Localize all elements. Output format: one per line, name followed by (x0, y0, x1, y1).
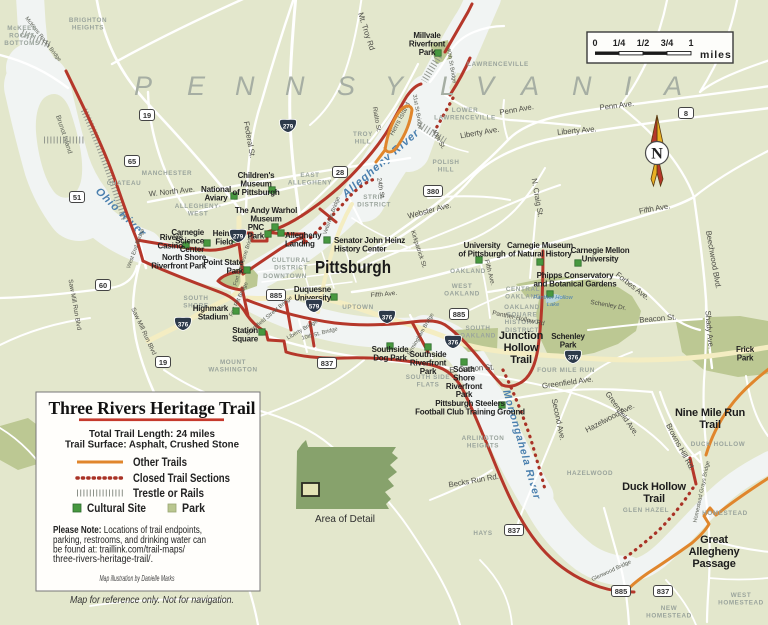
svg-text:HEIGHTS: HEIGHTS (72, 25, 104, 32)
svg-text:History Center: History Center (334, 244, 386, 253)
svg-text:Closed Trail Sections: Closed Trail Sections (133, 473, 230, 485)
svg-text:BRIGHTON: BRIGHTON (69, 17, 107, 24)
svg-text:Lake: Lake (547, 302, 560, 308)
svg-text:HAZELWOOD: HAZELWOOD (567, 470, 613, 477)
svg-text:GLEN HAZEL: GLEN HAZEL (623, 507, 669, 514)
svg-text:Allegheny: Allegheny (689, 546, 741, 558)
svg-text:579: 579 (309, 304, 320, 311)
svg-text:8: 8 (684, 109, 688, 118)
svg-text:HEIGHTS: HEIGHTS (467, 443, 499, 450)
svg-text:WEST: WEST (188, 211, 209, 218)
svg-text:Dog Park: Dog Park (373, 353, 407, 362)
svg-text:and Botanical Gardens: and Botanical Gardens (534, 279, 618, 288)
svg-text:I: I (624, 71, 632, 101)
svg-text:DISTRICT: DISTRICT (274, 265, 308, 272)
svg-text:Hollow: Hollow (504, 342, 539, 354)
svg-text:E: E (187, 71, 206, 101)
svg-text:885: 885 (453, 310, 466, 319)
svg-text:of Natural History: of Natural History (508, 249, 572, 258)
svg-text:Park: Park (560, 340, 577, 349)
svg-text:Field: Field (215, 237, 233, 246)
svg-text:BOTTOMS: BOTTOMS (4, 40, 40, 47)
svg-text:three-rivers-heritage-trail/.: three-rivers-heritage-trail/. (53, 554, 153, 565)
svg-text:Trestle or Rails: Trestle or Rails (133, 488, 204, 500)
svg-text:Park: Park (456, 390, 473, 399)
svg-text:Square: Square (232, 334, 259, 343)
svg-text:N: N (651, 146, 663, 163)
svg-text:Park: Park (420, 367, 437, 376)
svg-text:MOUNT: MOUNT (220, 359, 246, 366)
svg-text:Park: Park (182, 503, 206, 515)
svg-text:376: 376 (178, 322, 189, 329)
svg-text:Y: Y (385, 71, 405, 101)
svg-text:Junction: Junction (499, 330, 544, 342)
svg-text:LAWRENCEVILLE: LAWRENCEVILLE (434, 115, 496, 122)
svg-text:N: N (285, 71, 305, 101)
svg-text:POLISH: POLISH (432, 159, 459, 166)
svg-text:S: S (337, 71, 355, 101)
svg-text:Trail Surface: Asphalt, Crushe: Trail Surface: Asphalt, Crushed Stone (65, 439, 239, 451)
svg-text:885: 885 (615, 587, 628, 596)
svg-text:of Pittsburgh: of Pittsburgh (232, 188, 279, 197)
svg-text:WASHINGTON: WASHINGTON (208, 367, 257, 374)
svg-text:OAKLAND: OAKLAND (460, 333, 496, 340)
svg-text:HOMESTEAD: HOMESTEAD (646, 613, 692, 620)
svg-text:885: 885 (270, 291, 283, 300)
svg-text:Aviary: Aviary (205, 193, 229, 202)
svg-text:Other Trails: Other Trails (133, 457, 187, 469)
svg-text:Pittsburgh: Pittsburgh (315, 257, 391, 277)
svg-text:376: 376 (382, 315, 393, 322)
svg-text:UPTOWN: UPTOWN (342, 304, 373, 311)
svg-text:miles: miles (700, 49, 732, 61)
svg-text:Trail: Trail (643, 493, 665, 505)
svg-text:Passage: Passage (692, 558, 735, 570)
svg-text:SOUTH: SOUTH (183, 295, 208, 302)
svg-text:51: 51 (73, 193, 81, 202)
svg-text:P: P (134, 71, 152, 101)
svg-text:FLATS: FLATS (417, 382, 440, 389)
svg-text:MANCHESTER: MANCHESTER (142, 170, 192, 177)
svg-text:Landing: Landing (285, 239, 315, 248)
svg-text:Football Club Training Ground: Football Club Training Ground (415, 407, 525, 416)
svg-text:DUCK HOLLOW: DUCK HOLLOW (691, 441, 746, 448)
svg-text:of Pittsburgh: of Pittsburgh (458, 249, 505, 258)
svg-text:A: A (519, 71, 539, 101)
svg-text:OAKLAND: OAKLAND (504, 304, 540, 311)
svg-text:Great: Great (700, 534, 728, 546)
svg-text:TROY: TROY (353, 131, 373, 138)
svg-text:28: 28 (336, 168, 344, 177)
svg-text:V: V (476, 71, 497, 101)
svg-text:65: 65 (128, 157, 136, 166)
svg-text:N: N (572, 71, 592, 101)
svg-text:Area of Detail: Area of Detail (315, 513, 375, 525)
svg-text:376: 376 (568, 355, 579, 362)
svg-text:HILL: HILL (355, 139, 371, 146)
svg-text:Trail: Trail (510, 354, 532, 366)
svg-text:HOMESTEAD: HOMESTEAD (702, 510, 748, 517)
svg-text:Park: Park (737, 353, 754, 362)
svg-text:3/4: 3/4 (661, 38, 674, 48)
svg-text:LOWER: LOWER (452, 107, 478, 114)
svg-text:HOMESTEAD: HOMESTEAD (718, 600, 764, 607)
svg-text:DISTRICT: DISTRICT (357, 202, 391, 209)
svg-text:Park: Park (226, 266, 243, 275)
svg-text:376: 376 (448, 340, 459, 347)
svg-text:SOUTH: SOUTH (465, 325, 490, 332)
svg-text:837: 837 (508, 526, 521, 535)
svg-text:Duck Hollow: Duck Hollow (622, 481, 686, 493)
svg-text:837: 837 (321, 359, 334, 368)
svg-text:ALLEGHENY: ALLEGHENY (288, 180, 332, 187)
svg-text:Map for reference only. Not fo: Map for reference only. Not for navigati… (70, 594, 234, 606)
svg-text:279: 279 (233, 234, 244, 241)
svg-text:Park: Park (419, 48, 436, 57)
svg-text:19: 19 (143, 111, 151, 120)
svg-text:Three Rivers Heritage Trail: Three Rivers Heritage Trail (49, 398, 256, 418)
svg-text:WEST: WEST (452, 283, 473, 290)
svg-text:L: L (440, 71, 455, 101)
svg-text:McKEES: McKEES (7, 25, 37, 32)
svg-text:EAST: EAST (300, 172, 319, 179)
svg-text:HAYS: HAYS (473, 530, 492, 537)
svg-text:1: 1 (688, 38, 693, 48)
svg-text:Cultural Site: Cultural Site (87, 503, 146, 515)
svg-text:Map illustration by Danielle M: Map illustration by Danielle Marks (100, 574, 175, 583)
svg-text:University: University (582, 254, 619, 263)
svg-text:ALLEGHENY-: ALLEGHENY- (175, 203, 222, 210)
svg-text:60: 60 (99, 281, 107, 290)
svg-text:WEST: WEST (731, 592, 752, 599)
svg-text:0: 0 (592, 38, 597, 48)
svg-text:DOWNTOWN: DOWNTOWN (263, 273, 307, 280)
svg-text:LAWRENCEVILLE: LAWRENCEVILLE (467, 61, 529, 68)
svg-text:N: N (235, 71, 255, 101)
svg-text:ROCKS: ROCKS (9, 33, 35, 40)
svg-text:HILL: HILL (438, 167, 454, 174)
svg-text:A: A (662, 71, 682, 101)
svg-text:ARLINGTON: ARLINGTON (462, 435, 505, 442)
svg-text:Panther Hollow: Panther Hollow (533, 295, 573, 301)
svg-text:837: 837 (657, 587, 670, 596)
svg-text:Riverfront Park: Riverfront Park (151, 261, 207, 270)
svg-text:1/2: 1/2 (637, 38, 650, 48)
svg-text:Museum: Museum (250, 214, 281, 223)
svg-text:OAKLAND: OAKLAND (444, 291, 480, 298)
svg-text:Park: Park (247, 231, 264, 240)
svg-text:CHATEAU: CHATEAU (107, 180, 142, 187)
svg-text:NEW: NEW (661, 605, 678, 612)
svg-text:CULTURAL: CULTURAL (272, 257, 311, 264)
svg-text:1/4: 1/4 (613, 38, 626, 48)
svg-text:FOUR MILE RUN: FOUR MILE RUN (537, 367, 595, 374)
svg-text:380: 380 (427, 187, 440, 196)
svg-text:Nine Mile Run: Nine Mile Run (675, 407, 746, 419)
svg-text:Stadium: Stadium (198, 312, 228, 321)
svg-text:OAKLAND: OAKLAND (450, 268, 486, 275)
svg-text:19: 19 (159, 358, 167, 367)
svg-text:279: 279 (283, 124, 294, 131)
svg-text:Trail: Trail (699, 419, 721, 431)
